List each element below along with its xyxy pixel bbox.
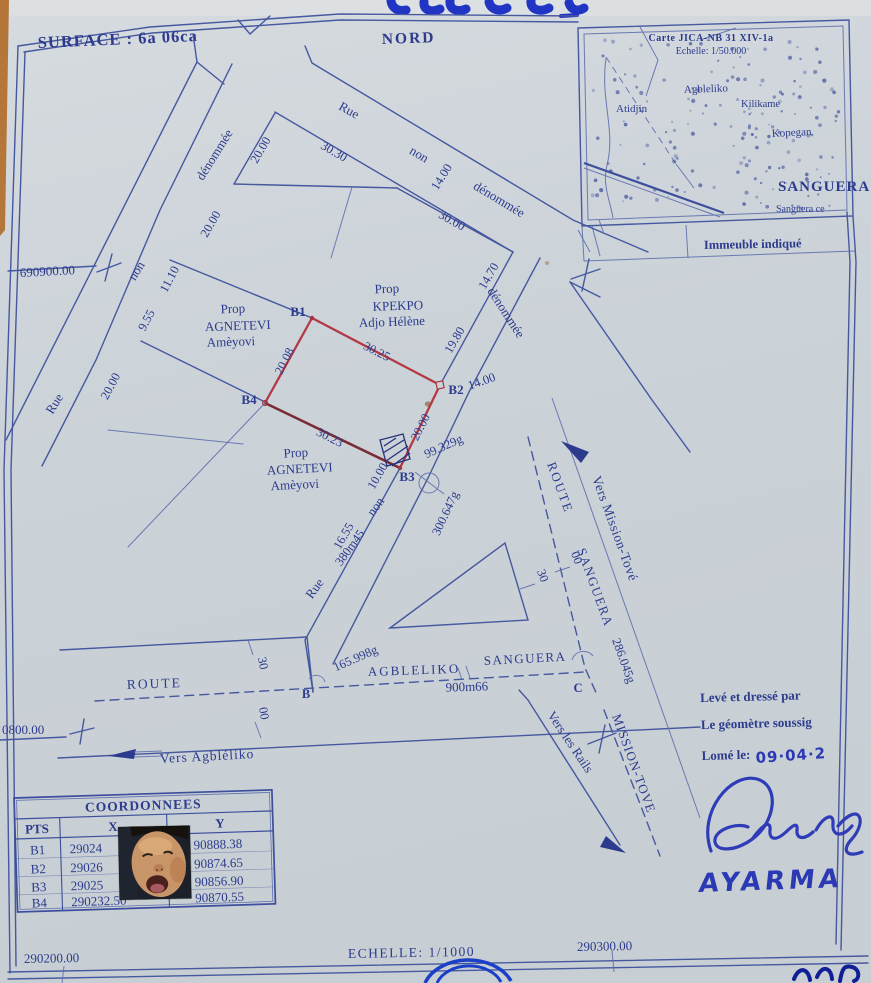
signature-name: AYARMA	[697, 864, 844, 899]
document-page: SURFACE : 6a 06ca NORD Carte JICA-NB 31 …	[0, 0, 871, 983]
owner2-name: KPEKPO	[372, 297, 423, 314]
label-b4: B4	[241, 392, 257, 407]
owner1-name: AGNETEVI	[205, 317, 271, 334]
table-row-x: 290232.50	[71, 893, 127, 910]
point-b1	[310, 316, 314, 320]
inset-place-kilikame: Kilikame	[741, 99, 780, 110]
owner2-firstname: Adjo Hélène	[359, 313, 426, 330]
grid-290300: 290300.00	[577, 938, 633, 954]
inset-title: Carte JICA-NB 31 XIV-1a	[649, 33, 774, 44]
table-row-pt: B4	[31, 895, 47, 910]
owner2-prop: Prop	[374, 281, 399, 297]
table-row-y: 90888.38	[193, 836, 242, 853]
inset-place-kopegan: Kopegan	[772, 126, 813, 140]
inset-place-agbleliko: Agbleliko	[684, 82, 729, 96]
grid-690900: 690900.00	[19, 262, 75, 280]
attest-line2: Le géomètre soussig	[701, 714, 813, 732]
table-row-pt: B1	[30, 842, 46, 857]
baby-photo	[118, 825, 192, 901]
north-label: NORD	[382, 29, 436, 48]
attest-line1: Levé et dressé par	[700, 687, 801, 705]
label-b3: B3	[399, 469, 415, 484]
table-row-y: 90870.55	[195, 889, 244, 906]
table-row-pt: B2	[30, 861, 46, 876]
inset-place-sanguera: SANGUERA	[778, 179, 870, 195]
table-col-x: X	[108, 819, 118, 834]
table-row-pt: B3	[31, 879, 47, 894]
label-b1: B1	[290, 304, 305, 319]
table-row-x: 29025	[71, 877, 104, 893]
label-point-c: C	[573, 681, 582, 695]
owner1-firstname: Amèyovi	[206, 333, 255, 350]
table-col-pts: PTS	[25, 821, 49, 837]
table-row-x: 29026	[70, 859, 103, 875]
owner1-prop: Prop	[220, 301, 245, 317]
paper-stain	[545, 261, 549, 265]
owner3-prop: Prop	[283, 444, 308, 460]
owner3-firstname: Amèyovi	[270, 476, 319, 494]
tick-00-horiz: 00	[256, 706, 272, 721]
survey-plan: SURFACE : 6a 06ca NORD Carte JICA-NB 31 …	[0, 0, 871, 983]
table-row-x: 29024	[69, 840, 102, 856]
inset-caption: Immeuble indiqué	[704, 236, 802, 252]
attest-line3: Lomé le:	[701, 747, 750, 763]
label-point-b: B	[302, 687, 310, 701]
grid-0800: 0800.00	[2, 722, 44, 737]
scale-label: ECHELLE: 1/1000	[348, 944, 475, 961]
table-row-y: 90874.65	[194, 855, 243, 872]
table-col-y: Y	[215, 815, 225, 830]
label-b2: B2	[448, 382, 463, 397]
inset-place-sanguera-centre: Sanguera ce	[776, 204, 825, 215]
inset-scale: Echelle: 1/50.000	[676, 46, 747, 57]
inset-place-atidjin: Atidjin	[616, 103, 648, 115]
table-row-y: 90856.90	[194, 873, 243, 890]
grid-290200: 290200.00	[24, 950, 80, 966]
point-b2	[436, 381, 444, 389]
route-length-900: 900m66	[445, 678, 489, 694]
route-left-label: ROUTE	[127, 675, 182, 692]
